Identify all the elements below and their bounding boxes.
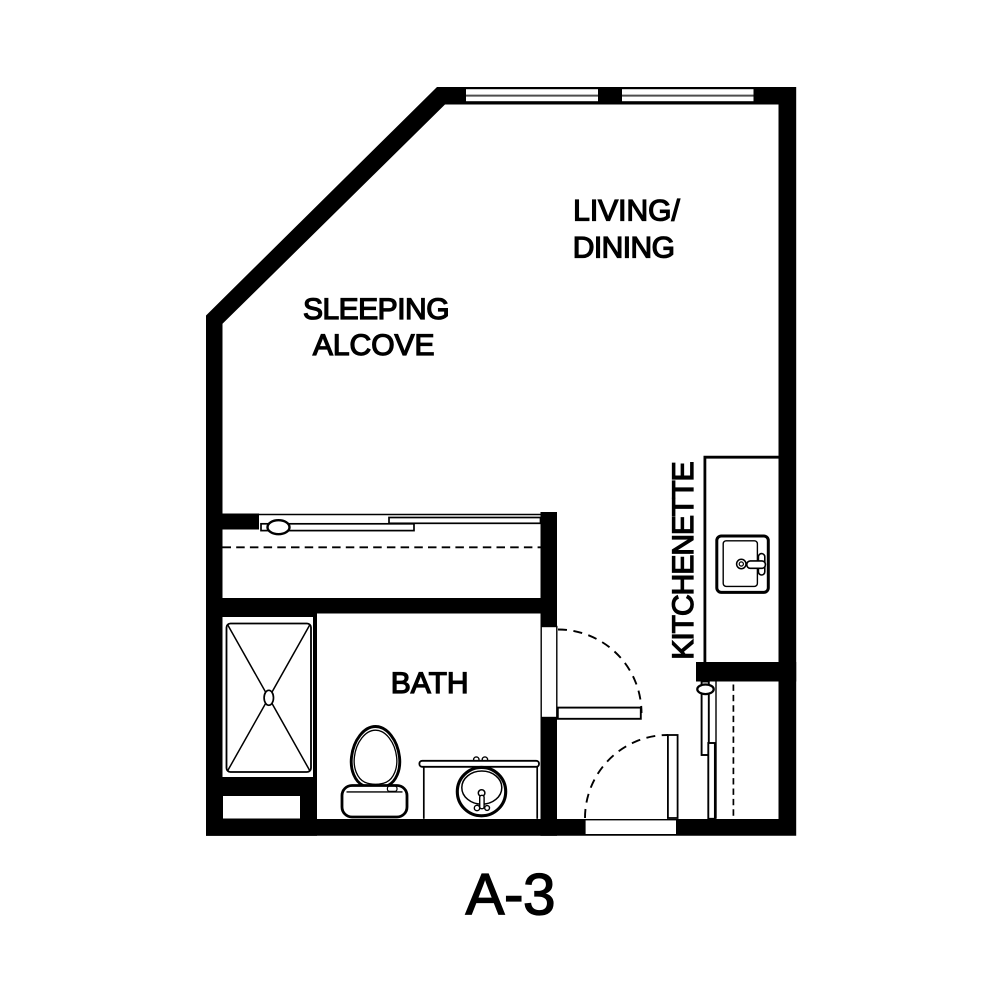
svg-text:BATH: BATH (391, 667, 469, 700)
svg-text:DINING: DINING (573, 231, 675, 264)
svg-text:A-3: A-3 (466, 863, 556, 928)
svg-text:ALCOVE: ALCOVE (313, 329, 435, 362)
svg-text:KITCHENETTE: KITCHENETTE (667, 462, 700, 659)
svg-text:LIVING/: LIVING/ (573, 195, 680, 228)
svg-text:SLEEPING: SLEEPING (303, 293, 449, 326)
